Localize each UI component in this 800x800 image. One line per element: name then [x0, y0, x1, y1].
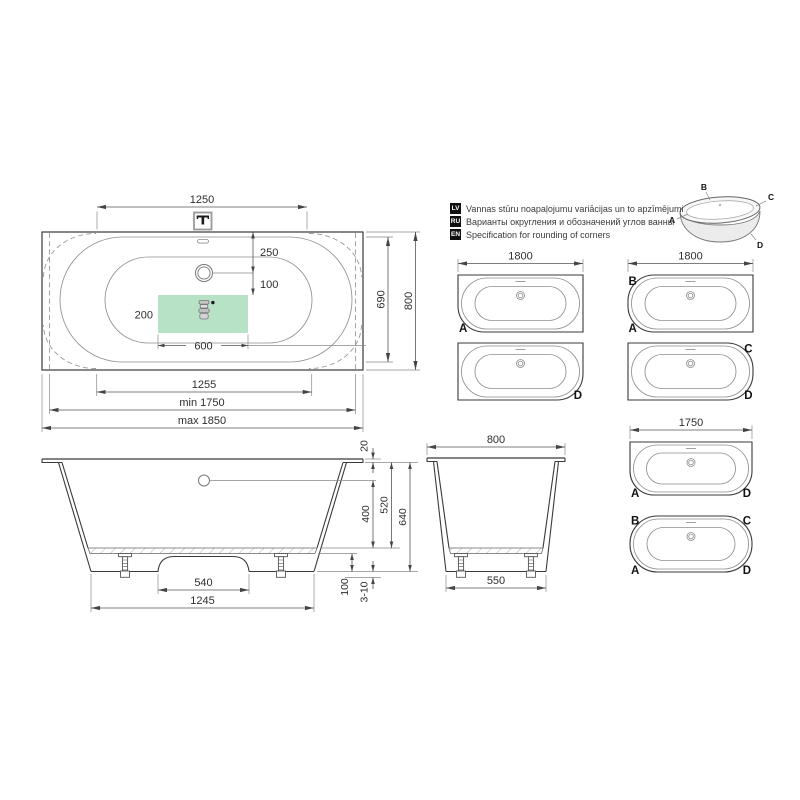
lang-badge-lv: LV	[450, 203, 461, 214]
dim-inner-depth: 400	[360, 481, 373, 549]
tub3d-label-c: C	[768, 192, 774, 202]
tub3d-label-b: B	[701, 182, 707, 192]
end-profile	[427, 458, 565, 572]
dim-outer-width: 800	[366, 232, 420, 370]
dim-depth-to-rim: 520	[379, 463, 392, 549]
svg-text:690: 690	[376, 290, 388, 308]
dim-bottom-width: 1255	[97, 374, 312, 396]
legend-row-en: EN Specification for rounding of corners	[450, 228, 670, 241]
svg-text:1250: 1250	[190, 194, 214, 206]
corner-label: D	[744, 390, 752, 402]
svg-text:20: 20	[359, 440, 371, 452]
dim-rim-thickness: 20	[359, 440, 374, 473]
corner-label: B	[629, 276, 637, 288]
corner-label: A	[631, 488, 639, 500]
svg-text:1750: 1750	[679, 417, 703, 429]
corner-label: C	[743, 516, 751, 528]
top-view: 1250 250 100 200 600 1255	[42, 194, 420, 432]
svg-text:640: 640	[397, 508, 409, 526]
lang-badge-ru: RU	[450, 216, 461, 227]
legend-text-en: Specification for rounding of corners	[466, 230, 610, 240]
svg-text:1245: 1245	[190, 595, 214, 607]
dim-total-height: 640	[397, 463, 410, 572]
foot-icon	[455, 554, 468, 578]
corner-label: D	[574, 390, 582, 402]
drain-dot	[211, 301, 214, 304]
lang-badge-en: EN	[450, 229, 461, 240]
end-view: 800 550	[427, 434, 565, 592]
variant-corners-b-a: 1800 B A	[628, 251, 753, 336]
legend-text-ru: Варианты округления и обозначений углов …	[466, 217, 674, 227]
svg-text:min 1750: min 1750	[179, 397, 224, 409]
corner-label: D	[743, 488, 751, 500]
legend-row-ru: RU Варианты округления и обозначений угл…	[450, 215, 670, 228]
dim-drain-to-zone: 100	[213, 273, 279, 295]
svg-text:600: 600	[194, 341, 212, 353]
svg-text:100: 100	[339, 578, 351, 596]
dim-drain-from-top: 250	[253, 232, 278, 273]
variant-corners-b-c-a-d: B C A D	[630, 516, 752, 578]
variant-corners-a-d: 1750 A D	[630, 417, 752, 500]
corner-label: B	[631, 516, 639, 528]
svg-text:400: 400	[360, 505, 372, 523]
foot-icon	[119, 554, 132, 578]
svg-text:3-10: 3-10	[359, 581, 371, 602]
corner-label: A	[629, 323, 637, 335]
svg-text:800: 800	[487, 434, 505, 446]
legend-row-lv: LV Vannas stūru noapaļojumu variācijas u…	[450, 202, 670, 215]
corner-label: D	[743, 565, 751, 577]
svg-text:800: 800	[403, 292, 415, 310]
dim-end-top-width: 800	[427, 434, 565, 455]
tub-3d-icon: A B C D	[669, 182, 774, 250]
corner-label: C	[744, 344, 752, 356]
foot-icon	[525, 554, 538, 578]
dim-skirt-height: 100	[339, 554, 352, 596]
svg-text:max 1850: max 1850	[178, 415, 226, 427]
svg-text:1255: 1255	[192, 379, 216, 391]
floor-hatch	[449, 548, 543, 554]
legend-text-lv: Vannas stūru noapaļojumu variācijas un t…	[466, 204, 683, 214]
faucet-icon	[194, 213, 212, 230]
corner-label: A	[459, 323, 467, 335]
variant-corners-c-d: C D	[628, 343, 753, 402]
drain-circle	[196, 265, 213, 282]
drawing-layer: 1250 250 100 200 600 1255	[0, 0, 800, 800]
svg-text:550: 550	[487, 575, 505, 587]
svg-text:520: 520	[379, 496, 391, 514]
dim-feet-range: 3-10	[359, 561, 374, 603]
dim-zone-width: 600	[158, 335, 366, 353]
svg-text:540: 540	[194, 577, 212, 589]
foot-icon	[275, 554, 288, 578]
svg-text:250: 250	[260, 247, 278, 259]
dim-arch-width: 540	[158, 574, 249, 594]
tub3d-label-d: D	[757, 240, 763, 250]
svg-text:100: 100	[260, 279, 278, 291]
svg-text:200: 200	[135, 310, 153, 322]
legend: LV Vannas stūru noapaļojumu variācijas u…	[450, 202, 670, 241]
floor-hatch	[88, 548, 317, 554]
side-view: 540 1245 20 400 520	[42, 440, 418, 612]
drawing-canvas: 1250 250 100 200 600 1255	[0, 0, 800, 800]
dim-inner-width: 690	[366, 237, 393, 362]
dim-zone-height: 200	[135, 310, 153, 322]
svg-text:1800: 1800	[508, 251, 532, 263]
corner-label: A	[631, 565, 639, 577]
overflow-hole	[199, 475, 377, 486]
overflow-slot	[198, 240, 209, 244]
variant-corner-d: D	[458, 343, 583, 402]
side-profile	[42, 459, 363, 572]
svg-text:1800: 1800	[678, 251, 702, 263]
variant-corner-a: 1800 A	[458, 251, 583, 336]
